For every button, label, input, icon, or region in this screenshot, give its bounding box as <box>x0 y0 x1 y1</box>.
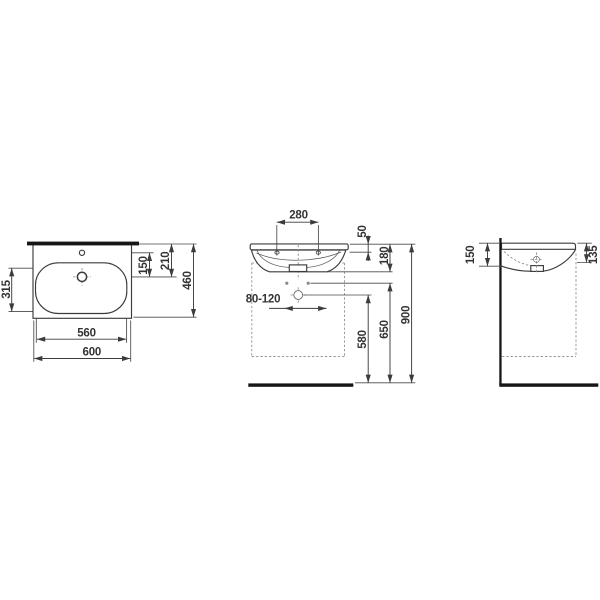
technical-drawing: 315 150 210 460 560 600 <box>0 0 600 600</box>
dim-label-460: 460 <box>182 271 194 290</box>
drain-trap-side <box>531 266 544 272</box>
dim-label-650: 650 <box>379 320 391 339</box>
wall-bar <box>27 242 139 246</box>
dim-label-150-side: 150 <box>465 246 477 265</box>
drain-trap-front <box>289 265 306 272</box>
front-view: 280 50 180 80-120 580 650 900 <box>246 210 416 387</box>
floor-bar-side <box>499 383 598 386</box>
dim-label-210: 210 <box>160 252 172 271</box>
dim-label-580: 580 <box>357 330 369 349</box>
rim-front <box>250 244 348 250</box>
fixing-dot-right <box>307 282 310 285</box>
dim-label-150-plan: 150 <box>138 256 150 275</box>
dim-label-900: 900 <box>401 306 413 325</box>
dim-label-560: 560 <box>77 327 96 339</box>
dim-label-280: 280 <box>289 210 308 222</box>
basin-bowl-plan <box>36 263 127 314</box>
fixing-dot-left <box>285 282 288 285</box>
side-view: 150 135 <box>465 238 600 387</box>
dim-label-80-120: 80-120 <box>246 293 281 305</box>
rim-side <box>502 243 576 249</box>
dim-label-600: 600 <box>83 347 102 359</box>
plan-view: 315 150 210 460 560 600 <box>1 242 196 362</box>
dim-label-135: 135 <box>588 245 600 264</box>
wall-line-side <box>499 238 501 385</box>
dim-label-315: 315 <box>1 279 13 298</box>
dim-label-50: 50 <box>357 225 369 237</box>
spec-sheet: 315 150 210 460 560 600 <box>0 0 600 600</box>
floor-bar-front <box>248 383 353 386</box>
dim-label-180: 180 <box>379 247 391 266</box>
